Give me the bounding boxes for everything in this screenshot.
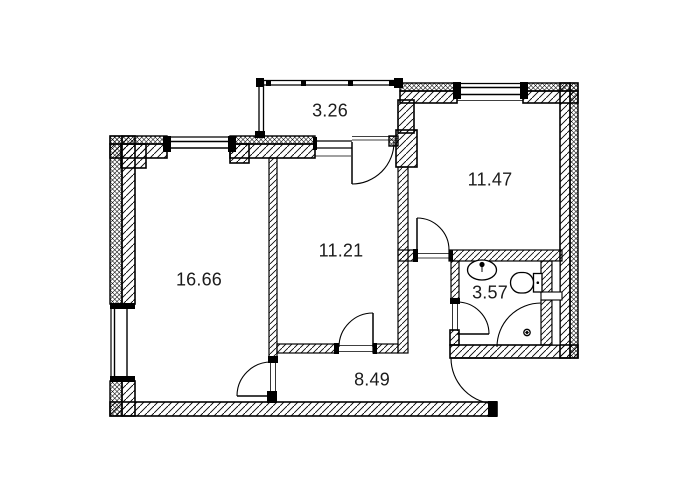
duct-shaft (552, 261, 560, 345)
railing-tick (266, 80, 271, 86)
duct-divider (541, 292, 562, 300)
door-jamb (267, 391, 277, 403)
living-room-area-label: 16.66 (176, 270, 222, 291)
railing-tick (348, 80, 353, 86)
bedroom-area-label: 11.47 (468, 170, 513, 191)
bathroom-area-label: 3.57 (472, 283, 508, 304)
railing-tick (301, 80, 306, 86)
sink-icon (468, 260, 497, 280)
hallway-area-label: 8.49 (354, 370, 390, 391)
floor-plan: 3.26 11.47 16.66 11.21 3.57 8.49 (0, 0, 680, 500)
middle-room-area-label: 11.21 (319, 241, 364, 262)
toilet-icon (511, 273, 543, 294)
wall-column (396, 130, 417, 167)
railing-tick (389, 80, 394, 86)
balcony-area-label: 3.26 (312, 101, 348, 122)
